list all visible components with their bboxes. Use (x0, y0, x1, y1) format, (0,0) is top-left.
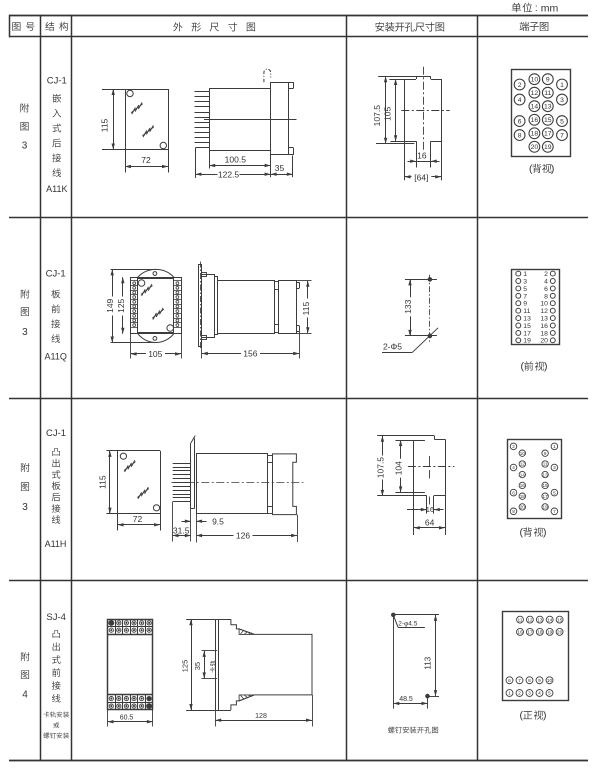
svg-text:115: 115 (301, 302, 311, 316)
svg-text:4: 4 (518, 97, 522, 104)
svg-text:2-Φ5: 2-Φ5 (383, 342, 402, 352)
svg-text:CJ-1: CJ-1 (46, 428, 66, 439)
svg-text:2: 2 (518, 82, 522, 89)
svg-text:100.5: 100.5 (225, 154, 247, 164)
svg-text:115: 115 (99, 118, 109, 132)
svg-text:A11Q: A11Q (45, 351, 67, 361)
svg-text:3: 3 (528, 691, 531, 697)
svg-text:8: 8 (518, 133, 522, 140)
svg-text:1: 1 (553, 444, 556, 449)
svg-text:7: 7 (560, 133, 564, 140)
svg-text:6: 6 (518, 119, 522, 126)
svg-text:18: 18 (537, 630, 543, 636)
svg-text::: : (535, 3, 538, 14)
svg-text:125: 125 (116, 298, 126, 312)
svg-text:133: 133 (403, 299, 413, 313)
svg-text:12: 12 (520, 462, 526, 467)
svg-text:17: 17 (527, 630, 533, 636)
svg-text:): ) (543, 527, 547, 539)
svg-text:11: 11 (544, 90, 551, 97)
svg-text:9: 9 (523, 301, 527, 308)
svg-text:126: 126 (236, 531, 250, 541)
svg-text:18: 18 (531, 131, 539, 138)
svg-text:6: 6 (544, 286, 548, 293)
svg-text:19: 19 (523, 338, 531, 345)
svg-text:4: 4 (22, 689, 28, 700)
svg-text:3: 3 (22, 140, 28, 151)
svg-text:8: 8 (544, 293, 548, 300)
svg-text:16: 16 (540, 323, 548, 330)
svg-text:149: 149 (105, 298, 115, 312)
svg-text:20: 20 (520, 505, 526, 510)
svg-text:4: 4 (538, 691, 541, 697)
svg-text:10: 10 (531, 77, 539, 84)
svg-text:): ) (551, 163, 555, 175)
svg-text:3: 3 (22, 327, 28, 338)
svg-text:7: 7 (553, 509, 556, 514)
svg-text:17: 17 (543, 494, 549, 499)
svg-text:125: 125 (180, 660, 189, 673)
svg-text:19: 19 (547, 630, 553, 636)
svg-text:35: 35 (193, 662, 202, 670)
svg-text:11: 11 (523, 308, 530, 315)
svg-text:3: 3 (523, 279, 527, 286)
svg-text:128: 128 (255, 713, 267, 720)
svg-text:1: 1 (560, 82, 564, 89)
svg-text:18: 18 (520, 494, 526, 499)
svg-text:15: 15 (523, 323, 531, 330)
svg-text:(: ( (521, 361, 525, 373)
svg-text:3: 3 (560, 97, 564, 104)
svg-text:): ) (544, 361, 548, 373)
svg-text:9: 9 (538, 678, 541, 684)
svg-text:16: 16 (531, 117, 539, 124)
svg-text:72: 72 (133, 514, 143, 524)
svg-text:156: 156 (243, 349, 257, 359)
svg-text:9: 9 (544, 451, 547, 456)
svg-text:5: 5 (560, 119, 564, 126)
svg-text:(: ( (529, 163, 533, 175)
svg-text:5: 5 (548, 691, 551, 697)
svg-text:(: ( (520, 710, 524, 722)
svg-text:15: 15 (544, 117, 552, 124)
svg-text:6: 6 (508, 678, 511, 684)
svg-text:8: 8 (528, 678, 531, 684)
svg-text:105: 105 (148, 349, 162, 359)
svg-text:13: 13 (544, 104, 552, 111)
svg-text:17: 17 (544, 131, 552, 138)
svg-text:1: 1 (508, 691, 511, 697)
svg-text:): ) (543, 710, 547, 722)
svg-text:16: 16 (517, 630, 523, 636)
svg-text:72: 72 (141, 155, 151, 165)
svg-text:15: 15 (557, 617, 563, 623)
svg-text:48.5: 48.5 (399, 696, 413, 703)
svg-text:17: 17 (523, 330, 531, 337)
svg-text:18: 18 (540, 330, 548, 337)
svg-text:8: 8 (512, 509, 515, 514)
svg-text:14: 14 (547, 617, 553, 623)
svg-text:mm: mm (541, 2, 559, 14)
svg-text:19: 19 (544, 144, 552, 151)
svg-text:60.5: 60.5 (120, 714, 134, 721)
svg-text:122.5: 122.5 (218, 169, 240, 179)
svg-text:13: 13 (523, 316, 531, 323)
svg-text:7: 7 (518, 678, 521, 684)
svg-text:10: 10 (540, 301, 548, 308)
svg-text:[64]: [64] (414, 173, 428, 183)
svg-text:20: 20 (557, 630, 563, 636)
svg-text:2-φ4.5: 2-φ4.5 (398, 620, 417, 627)
svg-text:19: 19 (543, 505, 549, 510)
svg-text:20: 20 (531, 144, 539, 151)
svg-text:31.5: 31.5 (173, 525, 190, 535)
svg-text:3: 3 (22, 502, 28, 513)
svg-text:15: 15 (543, 483, 549, 488)
svg-text:A11H: A11H (45, 539, 67, 549)
svg-text:3: 3 (553, 465, 556, 470)
svg-text:115: 115 (98, 475, 108, 489)
svg-text:5: 5 (523, 286, 527, 293)
svg-text:11: 11 (543, 462, 548, 467)
svg-text:SJ-4: SJ-4 (46, 612, 66, 623)
svg-text:1: 1 (523, 271, 527, 278)
svg-text:12: 12 (540, 308, 548, 315)
svg-text:5: 5 (553, 490, 556, 495)
svg-text:13: 13 (537, 617, 543, 623)
svg-text:35: 35 (275, 163, 285, 173)
svg-text:13: 13 (543, 472, 549, 477)
svg-text:2: 2 (512, 444, 515, 449)
svg-text:9.5: 9.5 (212, 517, 224, 527)
svg-text:13: 13 (540, 316, 548, 323)
svg-text:107.5: 107.5 (375, 457, 385, 479)
svg-text:20: 20 (540, 338, 548, 345)
svg-text:4: 4 (544, 279, 548, 286)
svg-text:14: 14 (531, 104, 539, 111)
svg-text:12: 12 (531, 90, 539, 97)
svg-text:64: 64 (425, 517, 435, 527)
svg-text:7: 7 (523, 293, 527, 300)
svg-text:105: 105 (382, 107, 392, 121)
svg-text:CJ-1: CJ-1 (46, 269, 66, 280)
svg-text:6: 6 (512, 490, 515, 495)
svg-text:10: 10 (520, 451, 526, 456)
svg-text:14: 14 (520, 472, 526, 477)
svg-text:107.5: 107.5 (372, 105, 382, 127)
svg-text:9: 9 (546, 77, 550, 84)
svg-text:A11K: A11K (46, 184, 67, 194)
svg-text:16: 16 (426, 505, 434, 514)
svg-text:CJ-1: CJ-1 (47, 76, 67, 87)
svg-text:2: 2 (518, 691, 521, 697)
svg-text:16: 16 (520, 483, 526, 488)
svg-text:10: 10 (547, 678, 553, 684)
svg-text:2: 2 (544, 271, 548, 278)
svg-text:113: 113 (424, 656, 433, 669)
svg-text:4: 4 (512, 465, 515, 470)
svg-text:(: ( (520, 527, 524, 539)
svg-text:104: 104 (394, 461, 404, 475)
svg-text:16: 16 (417, 151, 427, 161)
svg-text:12: 12 (527, 617, 533, 623)
svg-text:11: 11 (518, 617, 523, 623)
